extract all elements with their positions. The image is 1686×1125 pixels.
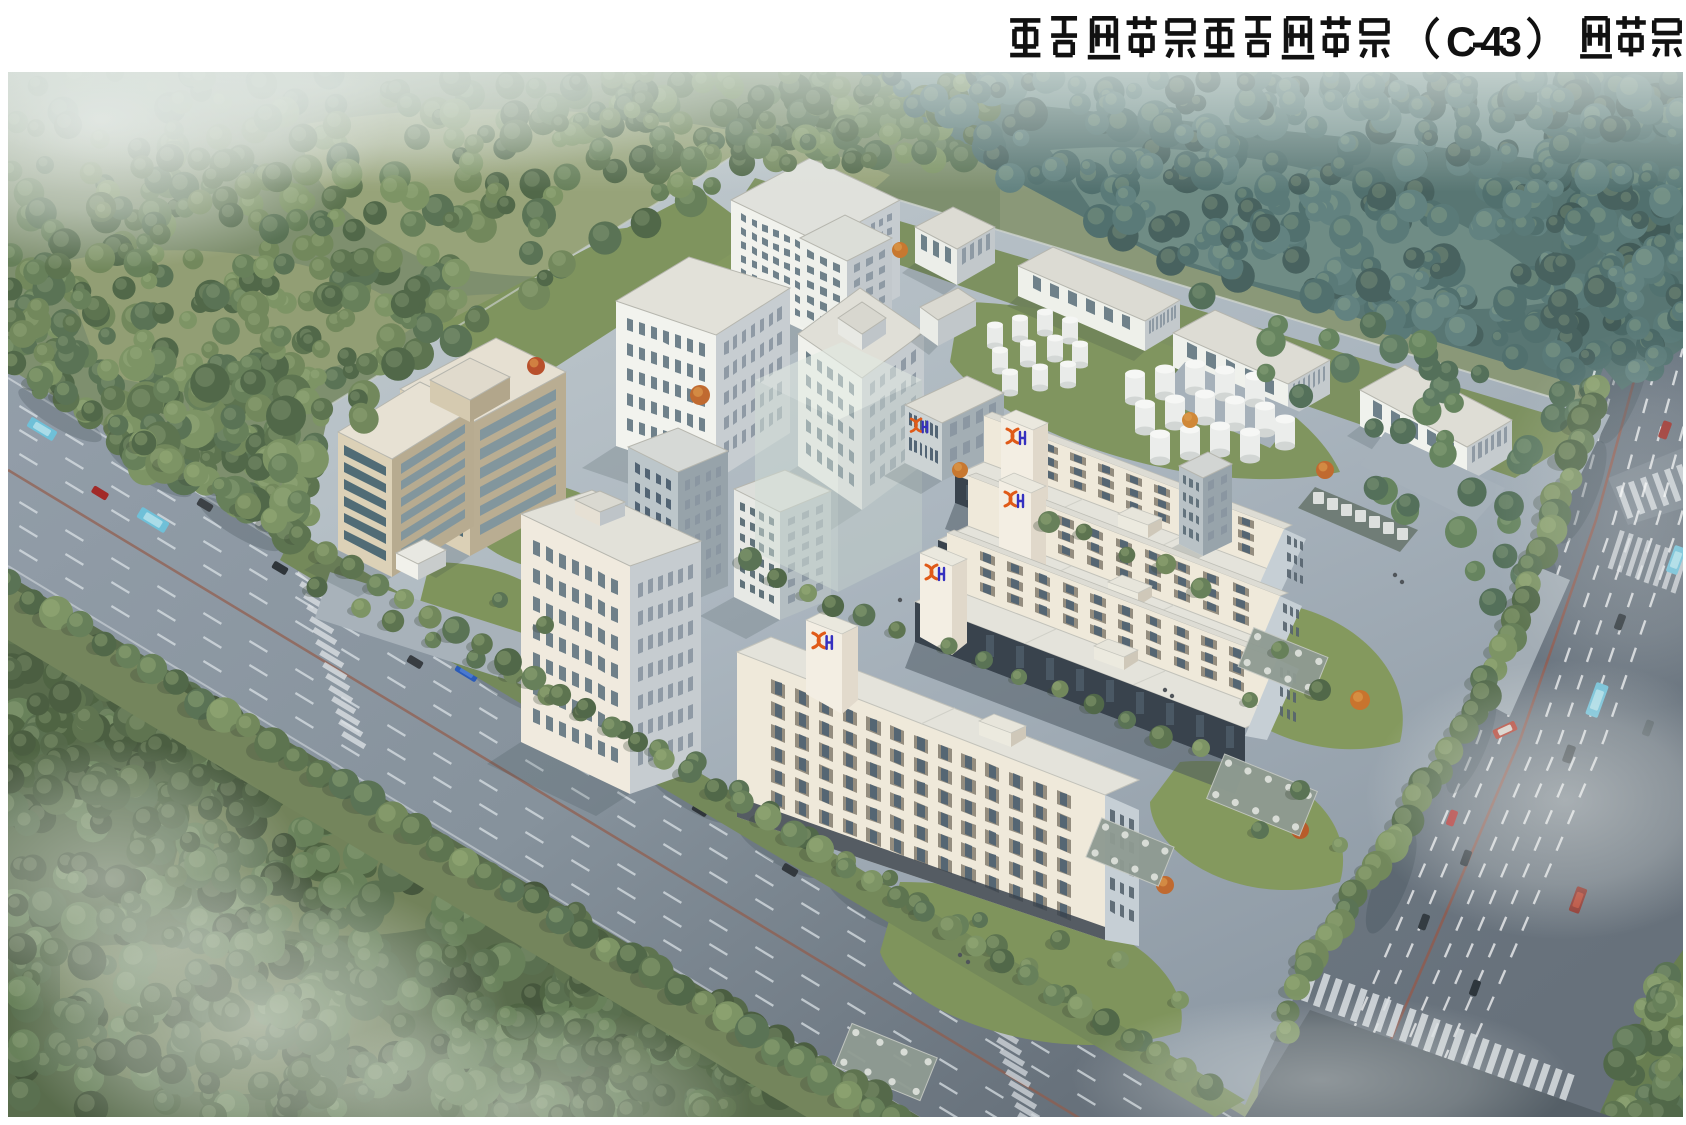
svg-text:C-43: C-43	[1446, 18, 1522, 65]
